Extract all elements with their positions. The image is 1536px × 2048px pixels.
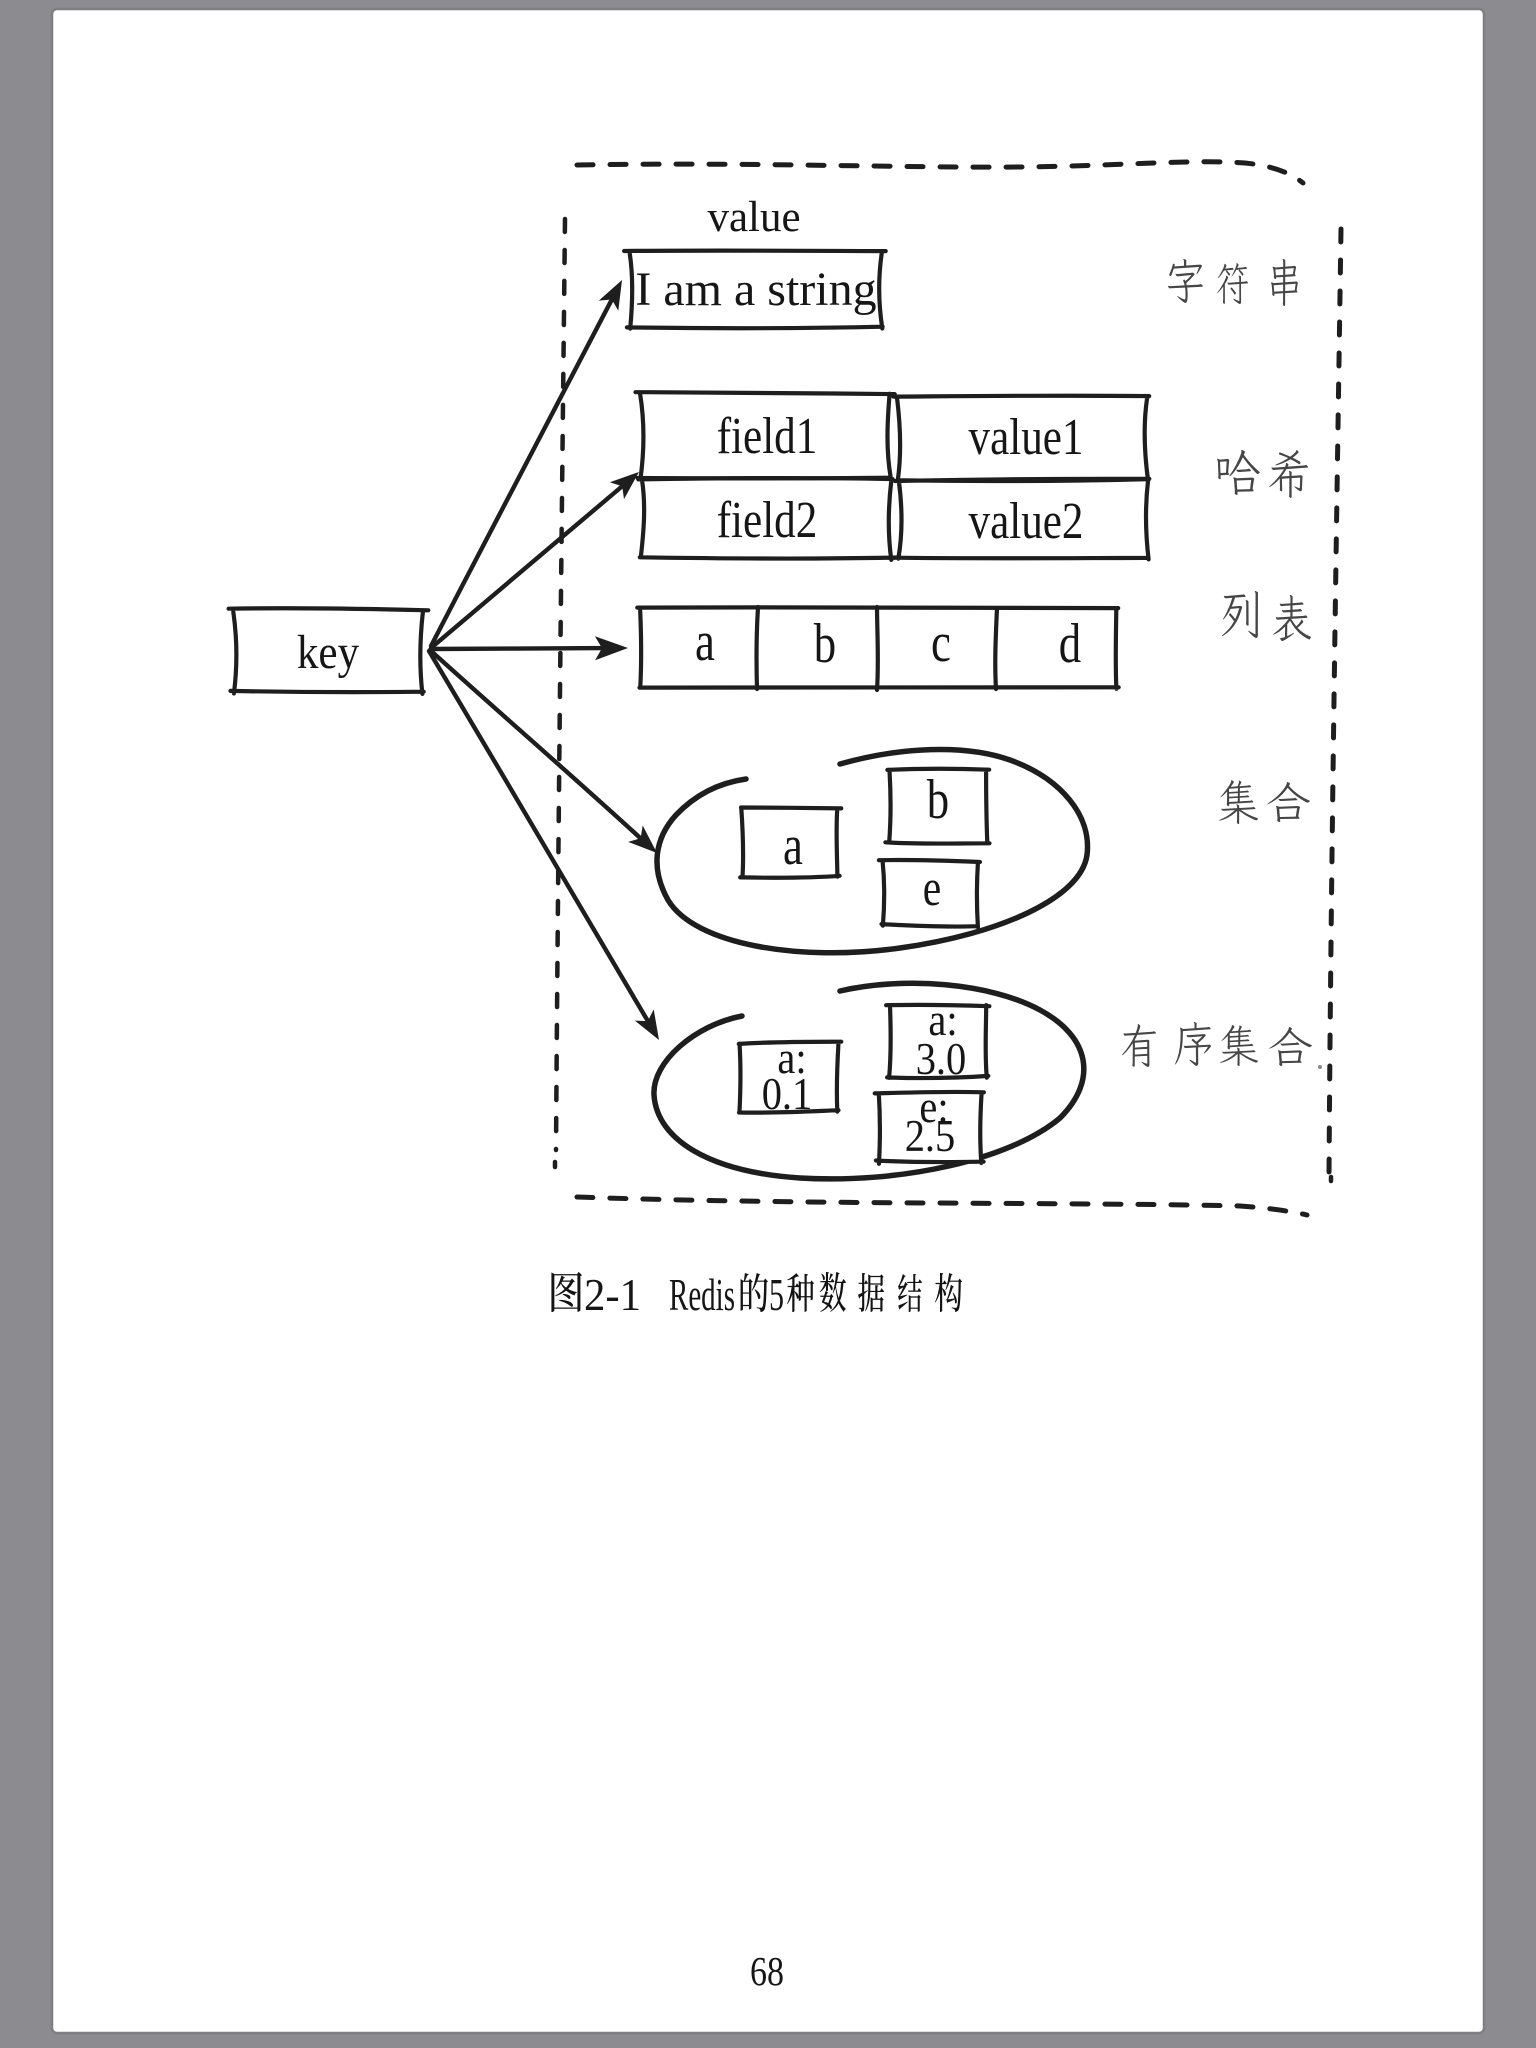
svg-text:2.5: 2.5: [905, 1112, 956, 1161]
svg-text:a: a: [783, 814, 803, 876]
svg-text:Redis: Redis: [669, 1269, 735, 1320]
svg-text:value2: value2: [968, 492, 1083, 550]
svg-text:d: d: [1059, 612, 1081, 674]
svg-text:b: b: [814, 612, 836, 674]
svg-text:key: key: [297, 625, 360, 679]
svg-text:field1: field1: [717, 407, 818, 465]
svg-text:68: 68: [750, 1948, 784, 1994]
svg-text:e: e: [923, 860, 941, 917]
svg-text:value1: value1: [968, 408, 1083, 466]
svg-text:value: value: [707, 194, 800, 241]
svg-text:a: a: [695, 610, 715, 672]
svg-text:field2: field2: [717, 491, 818, 549]
svg-text:c: c: [931, 611, 951, 673]
svg-text:3.0: 3.0: [916, 1035, 967, 1084]
svg-text:5: 5: [769, 1269, 784, 1320]
svg-text:b: b: [927, 768, 949, 830]
svg-text:0.1: 0.1: [762, 1070, 813, 1119]
svg-text:I am a string: I am a string: [635, 263, 876, 316]
svg-text:2-1: 2-1: [584, 1269, 641, 1320]
